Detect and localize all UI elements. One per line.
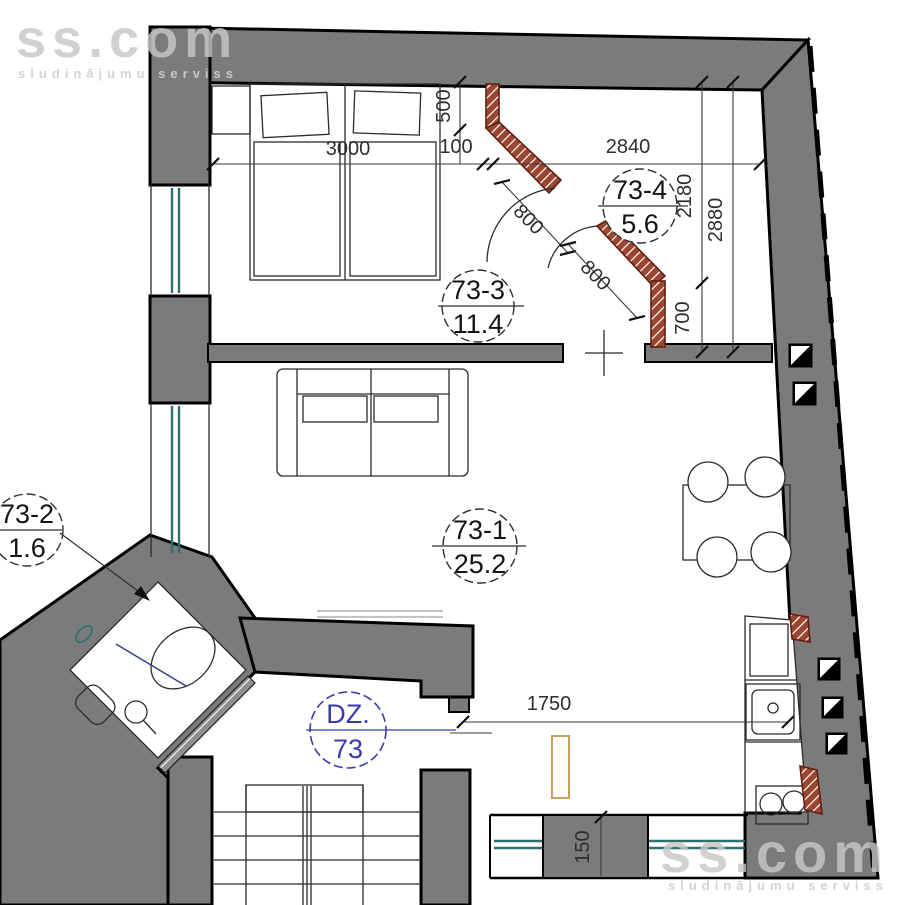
dim-800-a: 800 xyxy=(509,200,548,239)
room-area: 1.6 xyxy=(8,533,46,563)
floor-plan-svg: 3000 100 2840 500 2180 700 2880 800 800 … xyxy=(0,0,910,905)
wall-bedroom-living-left xyxy=(208,344,563,362)
dim-tick xyxy=(560,251,576,255)
dim-150: 150 xyxy=(572,830,594,863)
flue-icon xyxy=(822,697,843,718)
dim-800-b: 800 xyxy=(576,256,615,295)
furniture xyxy=(212,84,822,824)
pillow xyxy=(353,91,420,135)
flue-icon xyxy=(793,382,816,405)
pillow xyxy=(261,92,329,137)
bottom-pier xyxy=(543,815,648,878)
flue-icon xyxy=(826,733,847,754)
chair xyxy=(745,457,785,497)
dim-100: 100 xyxy=(439,136,472,158)
watermark-top-left: ss.com sludinājumu serviss xyxy=(16,9,238,81)
left-pier-mid xyxy=(150,296,210,403)
flue-icon xyxy=(818,658,840,680)
mattress xyxy=(254,142,340,276)
chair xyxy=(688,462,728,502)
dim-2840: 2840 xyxy=(606,136,651,158)
sofa-cushion xyxy=(374,396,438,422)
dim-3000: 3000 xyxy=(326,138,371,160)
radiator xyxy=(552,736,569,798)
dim-tick xyxy=(494,180,510,184)
room-area: 11.4 xyxy=(453,309,504,339)
chair xyxy=(751,532,791,572)
room-label-73-3: 73-3 11.4 xyxy=(438,270,524,342)
chair xyxy=(697,537,737,577)
dim-2880: 2880 xyxy=(705,198,727,243)
nightstand xyxy=(212,86,250,134)
living-bottom-wall xyxy=(240,618,473,697)
apartment-number: 73 xyxy=(333,734,363,764)
dim-500: 500 xyxy=(433,89,455,122)
apartment-code: DZ. xyxy=(326,699,370,729)
flue-icon xyxy=(789,344,812,367)
room-id: 73-2 xyxy=(0,499,54,529)
stair-right-pier xyxy=(421,770,470,905)
stair-left-pier xyxy=(168,757,212,905)
dim-700: 700 xyxy=(672,301,694,334)
room-area: 5.6 xyxy=(621,209,659,239)
watermark-bottom-right: ss.com sludinājumu serviss xyxy=(660,821,889,893)
watermark-tagline: sludinājumu serviss xyxy=(18,66,238,81)
watermark-tagline: sludinājumu serviss xyxy=(668,878,888,893)
watermark-brand: ss.com xyxy=(660,821,889,884)
top-wall xyxy=(150,27,808,90)
hatch-wall-vertical-bottom xyxy=(651,281,665,347)
watermark-brand: ss.com xyxy=(16,9,238,69)
dim-2180: 2180 xyxy=(674,174,696,219)
room-id: 73-4 xyxy=(613,175,667,205)
hatch-wall-vertical-top xyxy=(486,84,499,128)
floor-plan: 3000 100 2840 500 2180 700 2880 800 800 … xyxy=(0,0,910,905)
dim-tick xyxy=(629,316,645,320)
room-label-73-1: 73-1 25.2 xyxy=(432,509,526,583)
stairwell xyxy=(214,785,421,905)
apartment-label: DZ. 73 xyxy=(306,692,456,768)
mattress xyxy=(350,142,436,276)
room-id: 73-1 xyxy=(453,515,507,545)
sofa-cushion xyxy=(303,396,367,422)
room-area: 25.2 xyxy=(454,549,507,579)
kitchen-wall-hatch xyxy=(790,614,810,642)
stair-landing xyxy=(246,785,363,812)
room-id: 73-3 xyxy=(451,275,505,305)
dim-1750: 1750 xyxy=(527,693,572,715)
